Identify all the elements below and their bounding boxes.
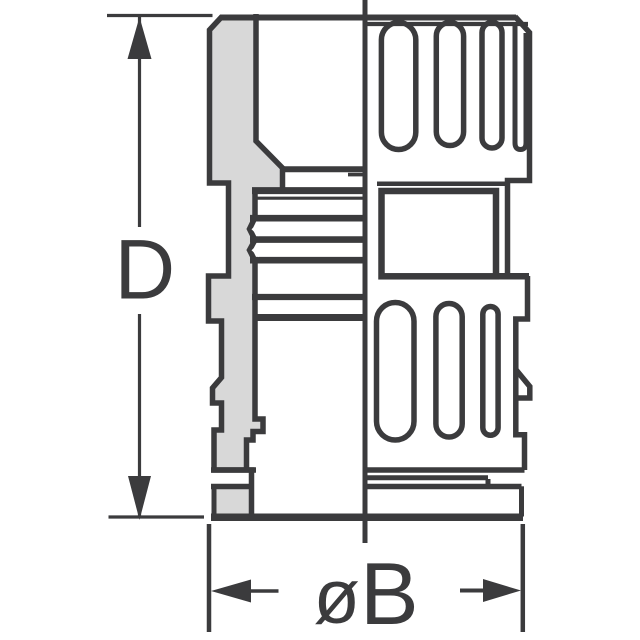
svg-text:D: D	[115, 223, 176, 317]
svg-text:ø: ø	[314, 555, 360, 640]
svg-text:B: B	[360, 544, 419, 640]
